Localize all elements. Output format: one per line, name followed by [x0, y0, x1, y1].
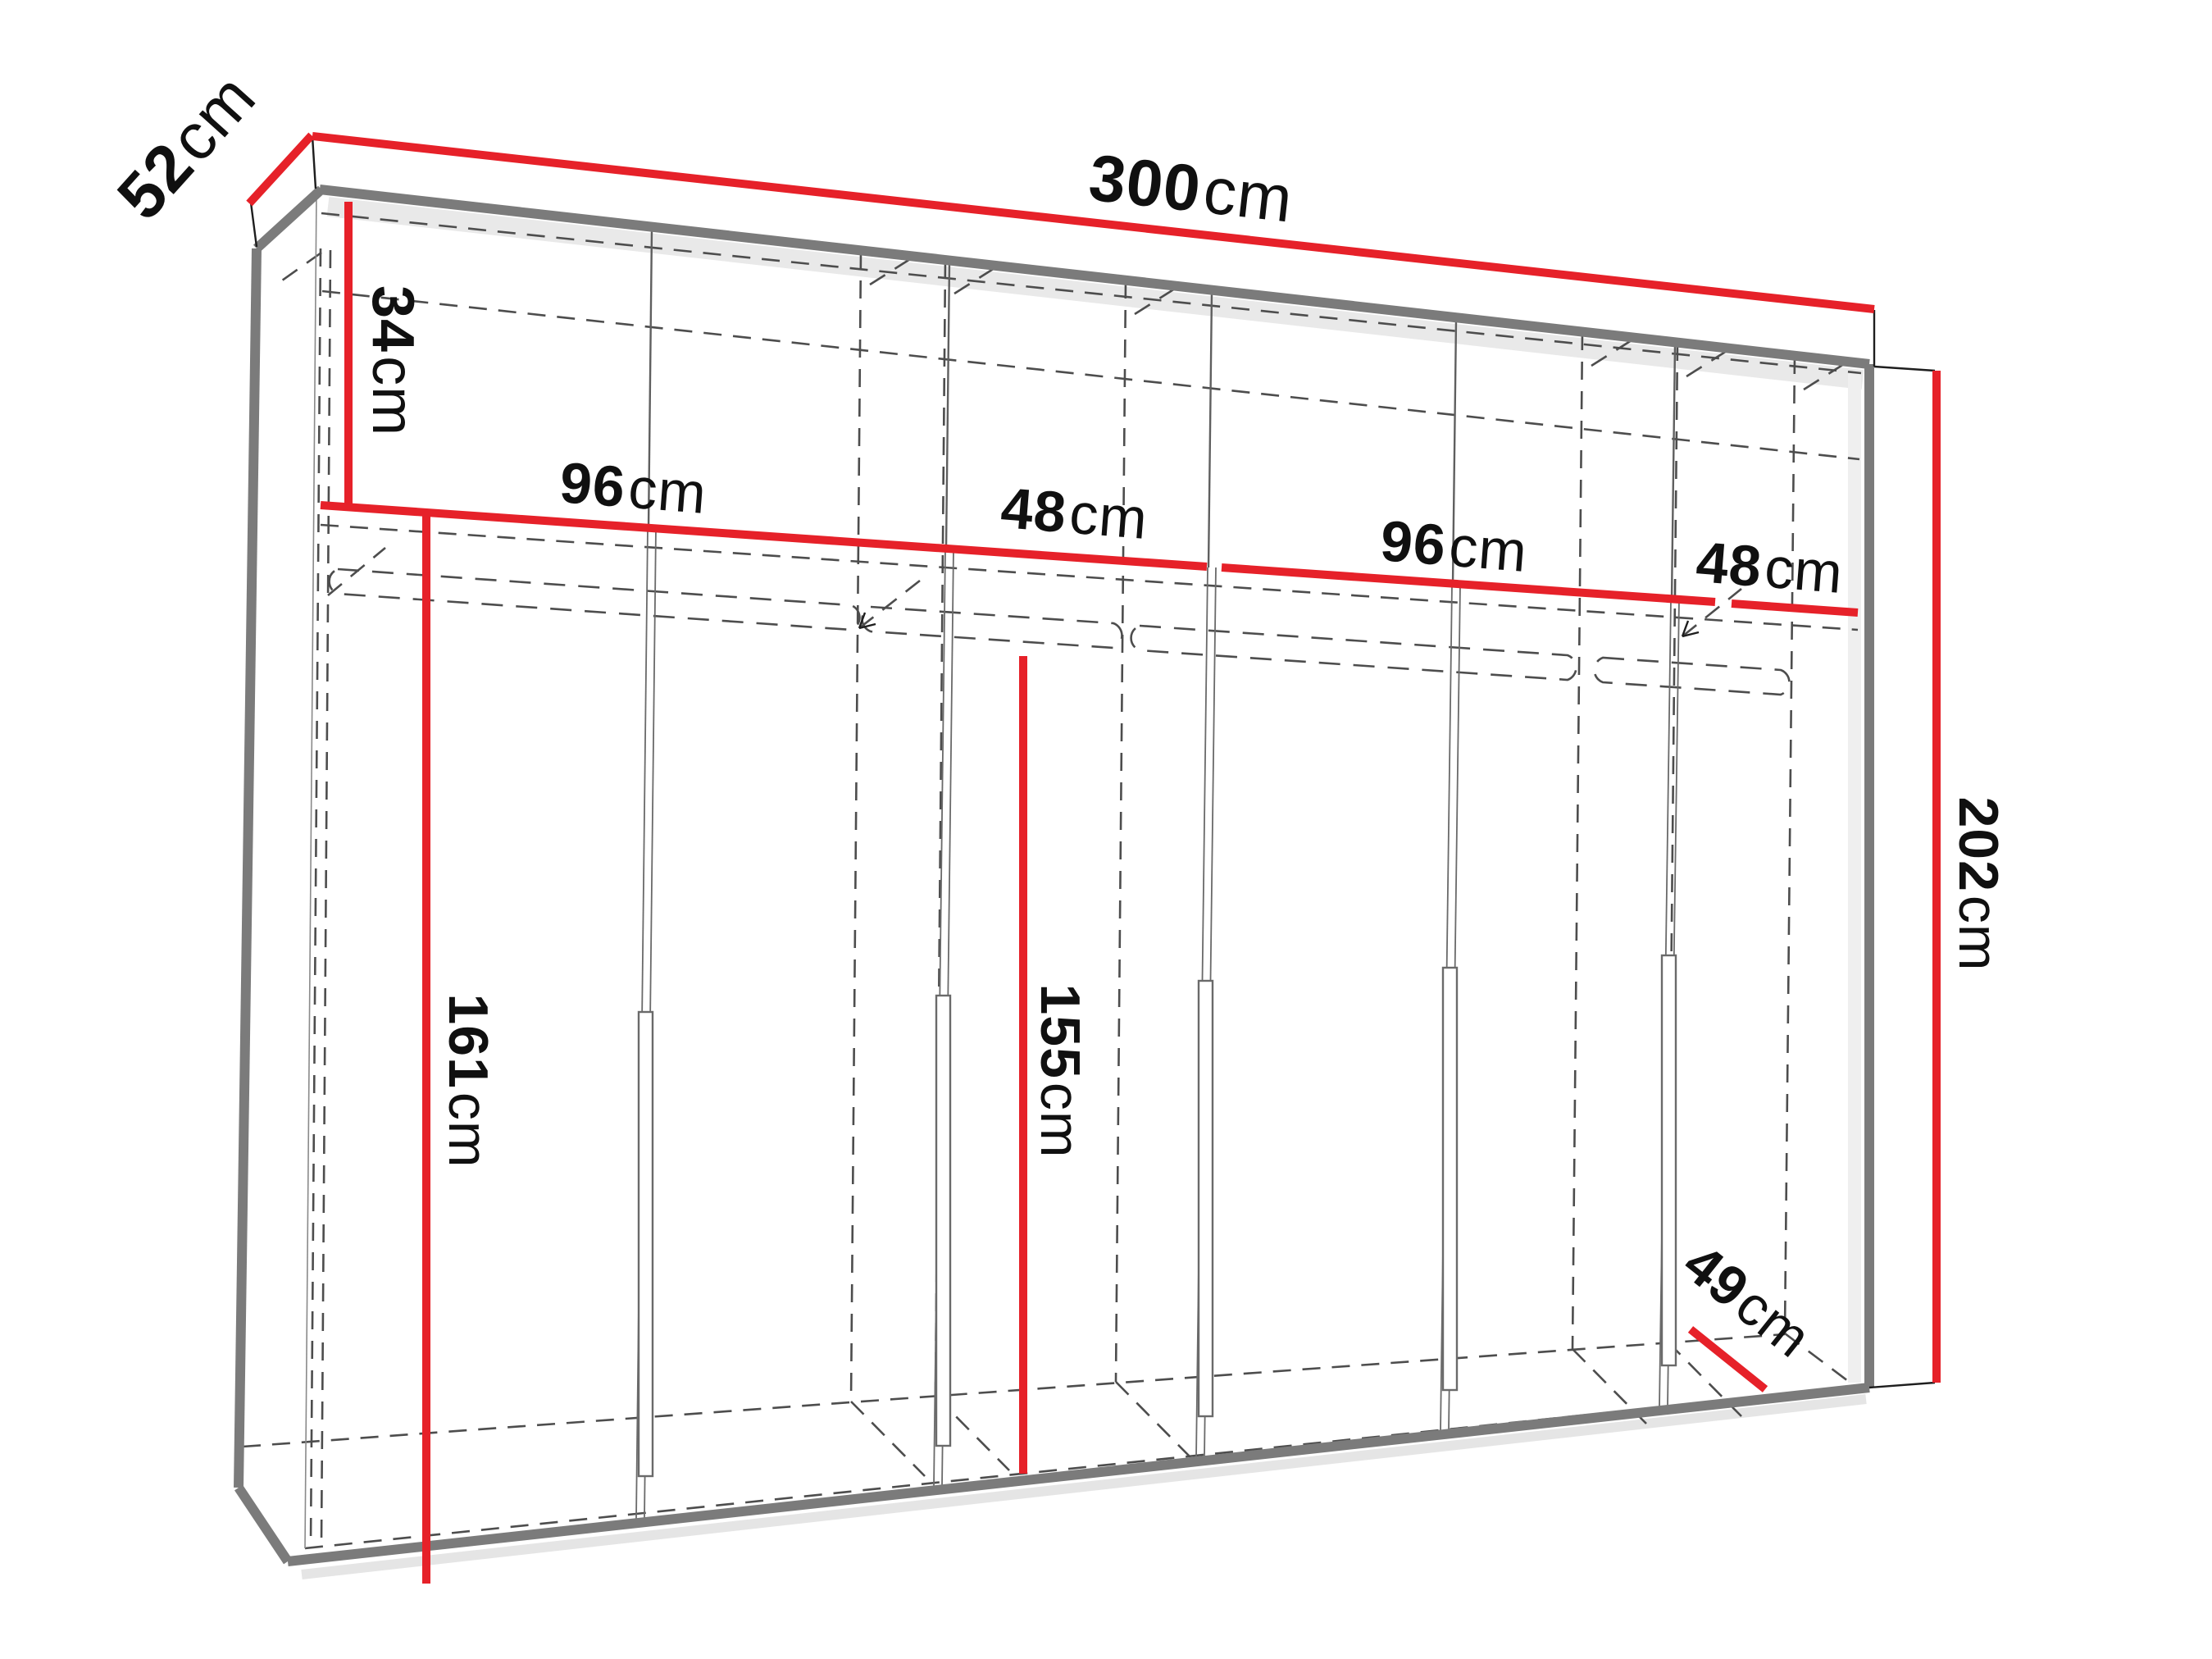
shading: [302, 207, 1866, 1575]
handle-strip: [1199, 981, 1213, 1416]
label-top-section-height: 34cm: [360, 285, 426, 436]
label-total-height: 202cm: [1947, 796, 2009, 971]
handle-strip: [639, 1012, 653, 1476]
label-bay1-width: 96cm: [558, 451, 709, 526]
label-middle-interior-height: 155cm: [1029, 983, 1091, 1158]
handle-strip: [1443, 968, 1457, 1390]
label-bay3-width: 96cm: [1378, 509, 1530, 585]
hidden-edges: [243, 213, 1861, 1548]
door-gaps: [305, 192, 1679, 1548]
wardrobe-dimension-diagram: 52cm 300cm 34cm 96cm 48cm 96cm 48cm 161c…: [0, 0, 2212, 1659]
top-panel-edges: [251, 136, 1935, 1388]
door-handles: [639, 955, 1676, 1476]
label-bottom-depth: 49cm: [1672, 1232, 1823, 1370]
label-bay2-width: 48cm: [999, 476, 1150, 552]
diagram-canvas: 52cm 300cm 34cm 96cm 48cm 96cm 48cm 161c…: [0, 0, 2212, 1659]
label-bay4-width: 48cm: [1694, 531, 1846, 606]
label-depth-top: 52cm: [103, 60, 269, 233]
dimension-line-depth-top: [249, 135, 312, 203]
label-left-interior-height: 161cm: [437, 993, 499, 1168]
carcass-outline: [239, 189, 1869, 1561]
dimension-labels: 52cm 300cm 34cm 96cm 48cm 96cm 48cm 161c…: [103, 60, 2009, 1370]
handle-strip: [1662, 955, 1676, 1365]
handle-strip: [936, 996, 950, 1446]
